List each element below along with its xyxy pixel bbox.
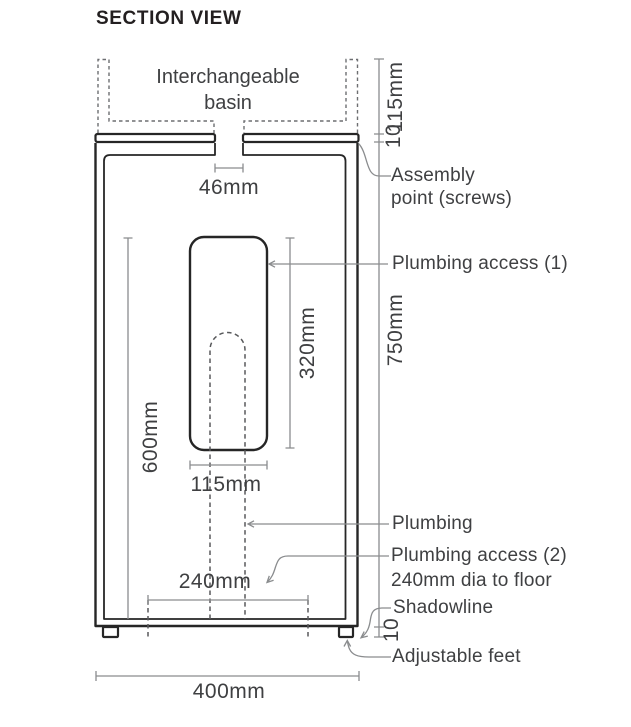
plumbing-access-2-label-line1: Plumbing access (2)	[391, 543, 567, 568]
dim-text-10-counter: 10	[382, 124, 406, 148]
right-foot	[339, 627, 353, 637]
shadowline-label: Shadowline	[393, 597, 493, 619]
plumbing-label: Plumbing	[392, 513, 473, 535]
leader-plumbing-access-2	[267, 556, 389, 583]
countertop-left	[96, 134, 216, 142]
countertop-right	[243, 134, 359, 142]
dim-line-46mm	[215, 164, 243, 173]
left-foot	[103, 627, 118, 637]
dim-text-240mm: 240mm	[179, 570, 252, 594]
plumbing-access-2-label-line2: 240mm dia to floor	[391, 568, 567, 593]
dim-line-240mm	[148, 595, 308, 605]
plumbing-access-opening	[190, 237, 267, 450]
dim-line-115mm	[190, 461, 267, 470]
assembly-point-label-line1: Assembly	[391, 164, 512, 187]
leader-plumbing-access-1	[269, 261, 388, 267]
plumbing-access-2-label: Plumbing access (2) 240mm dia to floor	[391, 543, 567, 593]
leader-plumbing	[248, 521, 389, 527]
cabinet-inner-outline	[104, 143, 346, 619]
leader-adjustable-feet	[344, 641, 391, 658]
basin-label-line2: basin	[156, 90, 299, 116]
dim-text-46mm: 46mm	[199, 176, 259, 200]
assembly-point-label: Assembly point (screws)	[391, 164, 512, 210]
basin-label: Interchangeable basin	[156, 64, 299, 116]
leader-assembly-point	[359, 144, 392, 177]
page-title: SECTION VIEW	[96, 8, 242, 30]
dim-text-750mm: 750mm	[384, 294, 408, 367]
adjustable-feet-label: Adjustable feet	[392, 646, 521, 668]
dim-text-400mm: 400mm	[193, 680, 266, 704]
dim-text-115mm-basin: 115mm	[384, 62, 408, 133]
assembly-point-label-line2: point (screws)	[391, 187, 512, 210]
section-view-drawing: SECTION VIEW Interchangeable basin 46mm …	[0, 0, 631, 727]
cabinet-outer-outline	[96, 143, 358, 626]
dim-text-320mm: 320mm	[296, 307, 320, 380]
plumbing-access-1-label: Plumbing access (1)	[392, 253, 568, 275]
basin-label-line1: Interchangeable	[156, 64, 299, 90]
dim-text-10-feet: 10	[380, 618, 404, 642]
dim-line-320mm	[286, 238, 295, 448]
dim-text-115mm-opening: 115mm	[191, 473, 262, 497]
dim-line-600mm	[124, 238, 133, 619]
dim-text-600mm: 600mm	[139, 401, 163, 474]
